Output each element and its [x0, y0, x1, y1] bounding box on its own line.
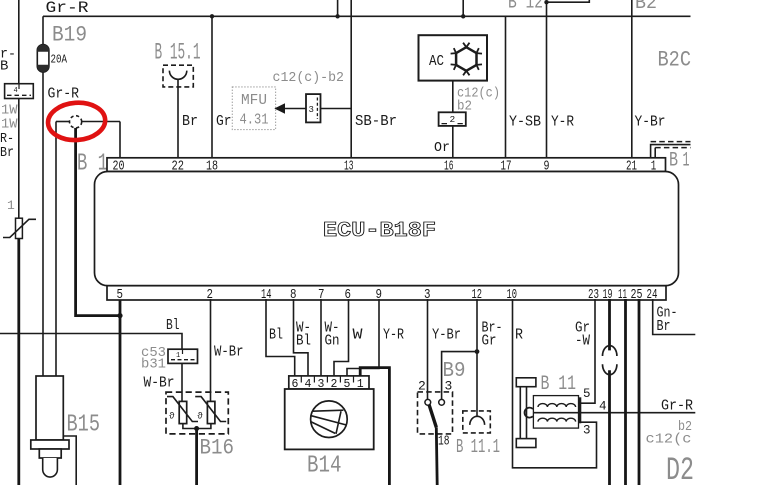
svg-text:c12(c)-b2: c12(c)-b2 [273, 70, 345, 86]
svg-text:Bl: Bl [166, 317, 180, 334]
svg-text:B2C: B2C [658, 48, 692, 73]
svg-text:D2: D2 [666, 452, 694, 485]
svg-text:Gr: Gr [482, 333, 497, 350]
svg-text:W: W [353, 327, 363, 344]
svg-text:22: 22 [172, 159, 185, 174]
svg-text:B 11.1: B 11.1 [456, 436, 500, 458]
svg-text:B 12: B 12 [508, 0, 543, 14]
svg-text:B16: B16 [200, 436, 235, 461]
svg-text:1: 1 [7, 198, 15, 213]
svg-text:c12(c: c12(c [646, 432, 692, 448]
svg-text:ϑ: ϑ [197, 411, 203, 422]
svg-text:Y-R: Y-R [551, 114, 574, 131]
svg-text:2: 2 [450, 114, 456, 125]
svg-text:Or: Or [434, 140, 450, 156]
svg-text:1: 1 [651, 159, 657, 174]
svg-text:AC: AC [429, 54, 444, 70]
svg-text:17: 17 [501, 159, 512, 174]
svg-text:Gr-R: Gr-R [661, 398, 693, 415]
svg-text:B: B [0, 59, 8, 75]
svg-text:B2: B2 [635, 0, 657, 14]
svg-text:21: 21 [626, 159, 637, 174]
svg-text:Br: Br [182, 113, 198, 130]
svg-text:B19: B19 [52, 23, 87, 48]
svg-text:B: B [669, 150, 678, 173]
svg-text:3: 3 [309, 105, 314, 115]
svg-text:Y-R: Y-R [383, 327, 404, 344]
svg-text:25: 25 [631, 288, 643, 303]
svg-text:SB-Br: SB-Br [355, 113, 397, 130]
svg-text:Y-Br: Y-Br [635, 114, 666, 131]
svg-text:18: 18 [206, 159, 218, 174]
svg-text:19: 19 [603, 288, 613, 303]
svg-text:B15: B15 [67, 412, 101, 439]
svg-text:18: 18 [438, 435, 450, 450]
svg-text:Br: Br [0, 145, 14, 161]
svg-text:3: 3 [583, 424, 591, 438]
svg-text:Y-Br: Y-Br [432, 327, 461, 344]
svg-text:Gr: Gr [216, 113, 232, 130]
svg-text:20: 20 [113, 159, 125, 174]
svg-text:W-Br: W-Br [144, 375, 175, 392]
svg-text:Y-SB: Y-SB [509, 114, 541, 131]
svg-text:Bl: Bl [296, 333, 311, 350]
svg-text:20A: 20A [51, 53, 68, 67]
svg-text:ϑ: ϑ [169, 411, 175, 422]
svg-text:B 15.1: B 15.1 [155, 40, 201, 66]
svg-text:b31: b31 [141, 356, 166, 372]
svg-text:3: 3 [445, 379, 453, 394]
svg-text:ECU-B18F: ECU-B18F [323, 220, 436, 243]
svg-text:R: R [515, 327, 523, 344]
svg-text:Bl: Bl [269, 327, 283, 344]
svg-text:Gn: Gn [325, 333, 340, 350]
svg-text:4: 4 [599, 400, 607, 414]
svg-text:16: 16 [444, 159, 454, 174]
svg-text:1: 1 [176, 352, 180, 360]
svg-text:MFU: MFU [241, 93, 267, 109]
svg-text:9: 9 [544, 159, 550, 174]
svg-text:4.31: 4.31 [240, 113, 269, 129]
svg-text:13: 13 [344, 159, 354, 174]
svg-text:W-Br: W-Br [214, 344, 244, 361]
svg-text:2: 2 [418, 379, 426, 394]
svg-text:Gr-R: Gr-R [46, 0, 89, 17]
svg-text:-W: -W [575, 333, 590, 350]
svg-text:23: 23 [588, 288, 599, 303]
svg-text:Gr-R: Gr-R [48, 86, 80, 103]
svg-text:B 11: B 11 [541, 373, 577, 396]
svg-text:5: 5 [583, 387, 591, 401]
svg-text:B14: B14 [307, 453, 342, 480]
svg-text:5: 5 [117, 288, 124, 303]
svg-text:Br: Br [657, 318, 671, 335]
svg-text:1: 1 [683, 150, 690, 173]
svg-text:4: 4 [14, 87, 18, 95]
